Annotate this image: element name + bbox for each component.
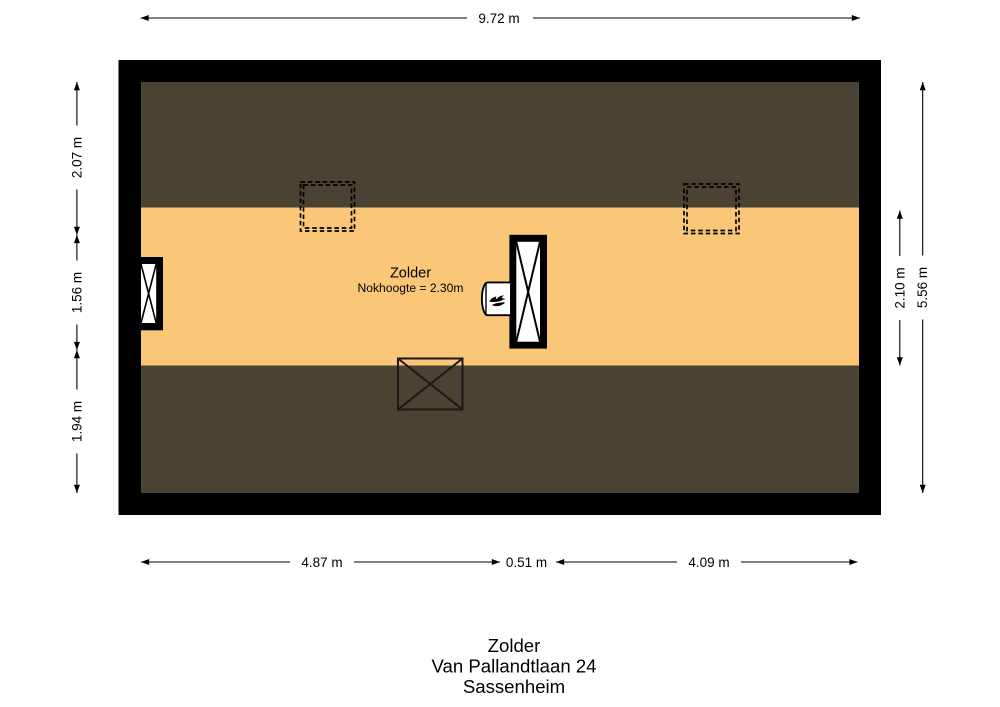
svg-text:5.56 m: 5.56 m xyxy=(915,267,930,308)
svg-text:4.09 m: 4.09 m xyxy=(688,555,729,570)
svg-text:4.87 m: 4.87 m xyxy=(301,555,342,570)
svg-text:2.10 m: 2.10 m xyxy=(892,267,907,308)
svg-text:0.51 m: 0.51 m xyxy=(506,555,547,570)
svg-text:Van Pallandtlaan 24: Van Pallandtlaan 24 xyxy=(431,655,596,676)
svg-text:Nokhoogte = 2.30m: Nokhoogte = 2.30m xyxy=(358,281,464,295)
svg-text:Sassenheim: Sassenheim xyxy=(463,676,565,697)
svg-text:2.07 m: 2.07 m xyxy=(70,137,85,178)
svg-text:Zolder: Zolder xyxy=(488,635,541,656)
svg-text:Zolder: Zolder xyxy=(390,266,431,282)
svg-text:1.94 m: 1.94 m xyxy=(70,401,85,442)
svg-text:1.56 m: 1.56 m xyxy=(70,272,85,313)
svg-text:9.72 m: 9.72 m xyxy=(478,11,519,26)
